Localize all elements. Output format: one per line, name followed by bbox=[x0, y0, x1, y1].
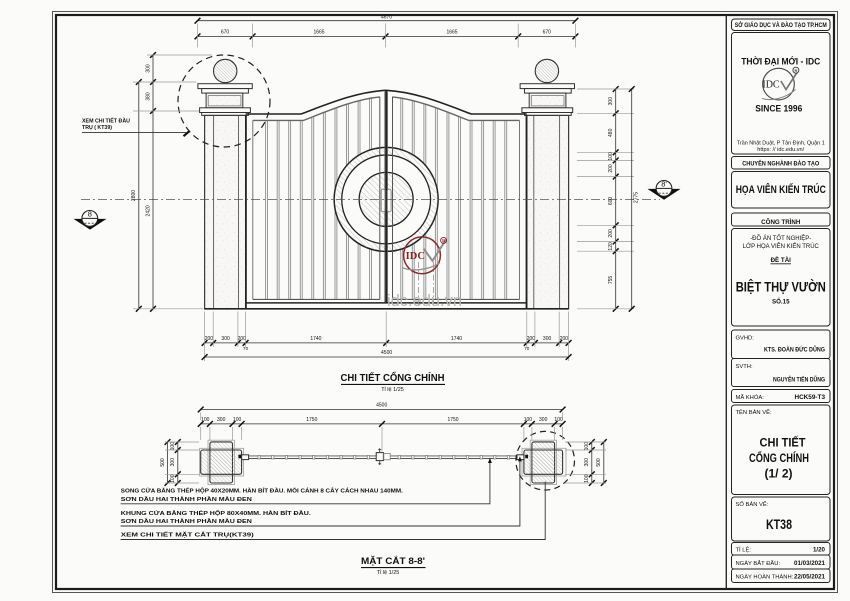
svg-text:SVTH:: SVTH: bbox=[736, 364, 753, 370]
svg-text:480: 480 bbox=[608, 128, 614, 137]
svg-text:100: 100 bbox=[170, 442, 176, 451]
svg-text:100: 100 bbox=[554, 417, 563, 423]
svg-text:100: 100 bbox=[201, 417, 210, 423]
svg-text:670: 670 bbox=[221, 30, 230, 36]
svg-text:Tỉ lệ 1/25: Tỉ lệ 1/25 bbox=[377, 569, 400, 576]
svg-text:IDC: IDC bbox=[406, 251, 425, 262]
svg-text:300: 300 bbox=[221, 336, 230, 342]
svg-text:SỞ GIÁO DỤC VÀ ĐÀO TẠO TP.HCM: SỞ GIÁO DỤC VÀ ĐÀO TẠO TP.HCM bbox=[735, 20, 827, 29]
svg-text:200: 200 bbox=[205, 336, 214, 342]
svg-text:8: 8 bbox=[88, 210, 92, 219]
svg-text:SƠN DẦU HAI THÀNH PHẦN MÀU ĐEN: SƠN DẦU HAI THÀNH PHẦN MÀU ĐEN bbox=[121, 496, 252, 503]
svg-text:300: 300 bbox=[543, 336, 552, 342]
svg-text:1/20: 1/20 bbox=[813, 547, 826, 554]
svg-text:2800: 2800 bbox=[131, 190, 137, 201]
svg-text:100: 100 bbox=[524, 417, 533, 423]
svg-text:SONG CỬA BẰNG THÉP HỘP 40X20MM: SONG CỬA BẰNG THÉP HỘP 40X20MM. HÀN BÍT … bbox=[121, 487, 403, 495]
svg-text:200: 200 bbox=[560, 336, 569, 342]
svg-text:CHI TIẾT CỔNG CHÍNH: CHI TIẾT CỔNG CHÍNH bbox=[341, 371, 445, 384]
svg-text:NGÀY BẮT ĐẦU:: NGÀY BẮT ĐẦU: bbox=[736, 559, 781, 567]
svg-text:KHUNG CỬA BẰNG THÉP HỘP 80X40M: KHUNG CỬA BẰNG THÉP HỘP 80X40MM. HÀN BÍT… bbox=[121, 509, 312, 517]
svg-text:IDC: IDC bbox=[762, 80, 780, 91]
svg-text:TÊN BẢN VẼ:: TÊN BẢN VẼ: bbox=[736, 408, 772, 416]
svg-text:4500: 4500 bbox=[381, 350, 392, 356]
svg-text:R: R bbox=[794, 68, 797, 73]
svg-text:22/05/2021: 22/05/2021 bbox=[794, 574, 826, 581]
svg-text:ĐỀ TÀI: ĐỀ TÀI bbox=[771, 257, 792, 264]
svg-text:1750: 1750 bbox=[306, 417, 317, 423]
svg-text:100: 100 bbox=[170, 474, 176, 483]
svg-text:(1/ 2): (1/ 2) bbox=[764, 467, 792, 481]
svg-text:1665: 1665 bbox=[446, 30, 457, 36]
svg-text:100: 100 bbox=[584, 442, 590, 451]
svg-text:KTS. ĐOÀN ĐỨC DŨNG: KTS. ĐOÀN ĐỨC DŨNG bbox=[764, 345, 825, 354]
svg-text:MẶT CẮT 8-8': MẶT CẮT 8-8' bbox=[361, 556, 425, 567]
svg-text:200: 200 bbox=[238, 336, 247, 342]
svg-text:XEM CHI TIẾT MẶT CẮT TRỤ(KT39): XEM CHI TIẾT MẶT CẮT TRỤ(KT39) bbox=[121, 530, 254, 538]
svg-text:LỚP HỌA VIÊN KIẾN TRÚC: LỚP HỌA VIÊN KIẾN TRÚC bbox=[743, 242, 820, 250]
svg-text:-ĐỒ ÁN TỐT NGHIỆP-: -ĐỒ ÁN TỐT NGHIỆP- bbox=[750, 234, 811, 242]
svg-text:SỐ.15: SỐ.15 bbox=[772, 299, 790, 306]
svg-text:Tỉ lệ 1/25: Tỉ lệ 1/25 bbox=[381, 386, 404, 393]
svg-text:1740: 1740 bbox=[310, 336, 321, 342]
svg-text:200: 200 bbox=[608, 164, 614, 173]
svg-text:CHUYÊN NGHÀNH ĐÀO TẠO: CHUYÊN NGHÀNH ĐÀO TẠO bbox=[742, 159, 819, 167]
svg-text:600: 600 bbox=[608, 197, 614, 206]
svg-text:1740: 1740 bbox=[451, 336, 462, 342]
svg-text:NGÀY HOÀN THÀNH:: NGÀY HOÀN THÀNH: bbox=[736, 574, 794, 581]
svg-text:300: 300 bbox=[608, 97, 614, 106]
svg-text:670: 670 bbox=[543, 30, 552, 36]
svg-text:755: 755 bbox=[608, 276, 614, 285]
svg-text:120: 120 bbox=[608, 242, 614, 251]
svg-text:300: 300 bbox=[217, 417, 226, 423]
svg-text:XEM CHI TIẾT ĐẦU: XEM CHI TIẾT ĐẦU bbox=[82, 118, 130, 125]
svg-text:100: 100 bbox=[233, 417, 242, 423]
svg-text:200: 200 bbox=[527, 336, 536, 342]
svg-text:SƠN DẦU HAI THÀNH PHẦN MÀU ĐEN: SƠN DẦU HAI THÀNH PHẦN MÀU ĐEN bbox=[121, 518, 252, 525]
svg-text:1750: 1750 bbox=[447, 417, 458, 423]
svg-text:500: 500 bbox=[596, 458, 602, 467]
svg-text:TRỤ ( KT39): TRỤ ( KT39) bbox=[82, 125, 112, 131]
svg-text:KT38: KT38 bbox=[766, 516, 792, 532]
svg-text:300: 300 bbox=[145, 64, 151, 73]
svg-text:TỈ LỆ:: TỈ LỆ: bbox=[736, 546, 752, 554]
svg-text:HCK59-T3: HCK59-T3 bbox=[794, 394, 825, 401]
svg-text:CỔNG CHÍNH: CỔNG CHÍNH bbox=[749, 450, 809, 465]
svg-text:2420: 2420 bbox=[145, 205, 151, 216]
svg-text:SINCE 1996: SINCE 1996 bbox=[755, 103, 802, 113]
svg-text:Trần Nhật Duật, P Tân Định, Qu: Trần Nhật Duật, P Tân Định, Quận 1 bbox=[737, 141, 825, 147]
svg-text:200: 200 bbox=[608, 229, 614, 238]
svg-text:01/03/2021: 01/03/2021 bbox=[794, 560, 826, 567]
svg-text:300: 300 bbox=[170, 458, 176, 467]
svg-text:4670: 4670 bbox=[381, 15, 392, 21]
svg-text:BIỆT THỰ VƯỜN: BIỆT THỰ VƯỜN bbox=[736, 278, 826, 295]
svg-text:SỐ BẢN VẼ:: SỐ BẢN VẼ: bbox=[736, 501, 769, 508]
svg-text:THỜI ĐẠI MỚI - IDC: THỜI ĐẠI MỚI - IDC bbox=[741, 56, 820, 67]
svg-text:CHI TIẾT: CHI TIẾT bbox=[760, 435, 807, 450]
svg-text:R: R bbox=[442, 238, 445, 243]
svg-text:1665: 1665 bbox=[313, 30, 324, 36]
svg-text:idc.edu.vn: idc.edu.vn bbox=[387, 291, 462, 310]
svg-text:8': 8' bbox=[661, 180, 667, 189]
svg-text:500: 500 bbox=[160, 458, 166, 467]
svg-text:4500: 4500 bbox=[376, 403, 387, 409]
svg-text:100: 100 bbox=[608, 152, 614, 161]
svg-text:380: 380 bbox=[145, 92, 151, 101]
svg-text:GVHD:: GVHD: bbox=[736, 336, 755, 342]
svg-text:https: // idc.edu.vn/: https: // idc.edu.vn/ bbox=[757, 147, 804, 153]
svg-text:MÃ KHÓA:: MÃ KHÓA: bbox=[736, 394, 765, 401]
svg-text:CÔNG TRÌNH: CÔNG TRÌNH bbox=[761, 218, 801, 226]
svg-text:300: 300 bbox=[539, 417, 548, 423]
svg-text:300: 300 bbox=[584, 458, 590, 467]
svg-text:HỌA VIÊN KIẾN TRÚC: HỌA VIÊN KIẾN TRÚC bbox=[736, 183, 826, 196]
svg-text:100: 100 bbox=[584, 474, 590, 483]
svg-text:2775: 2775 bbox=[634, 192, 640, 203]
